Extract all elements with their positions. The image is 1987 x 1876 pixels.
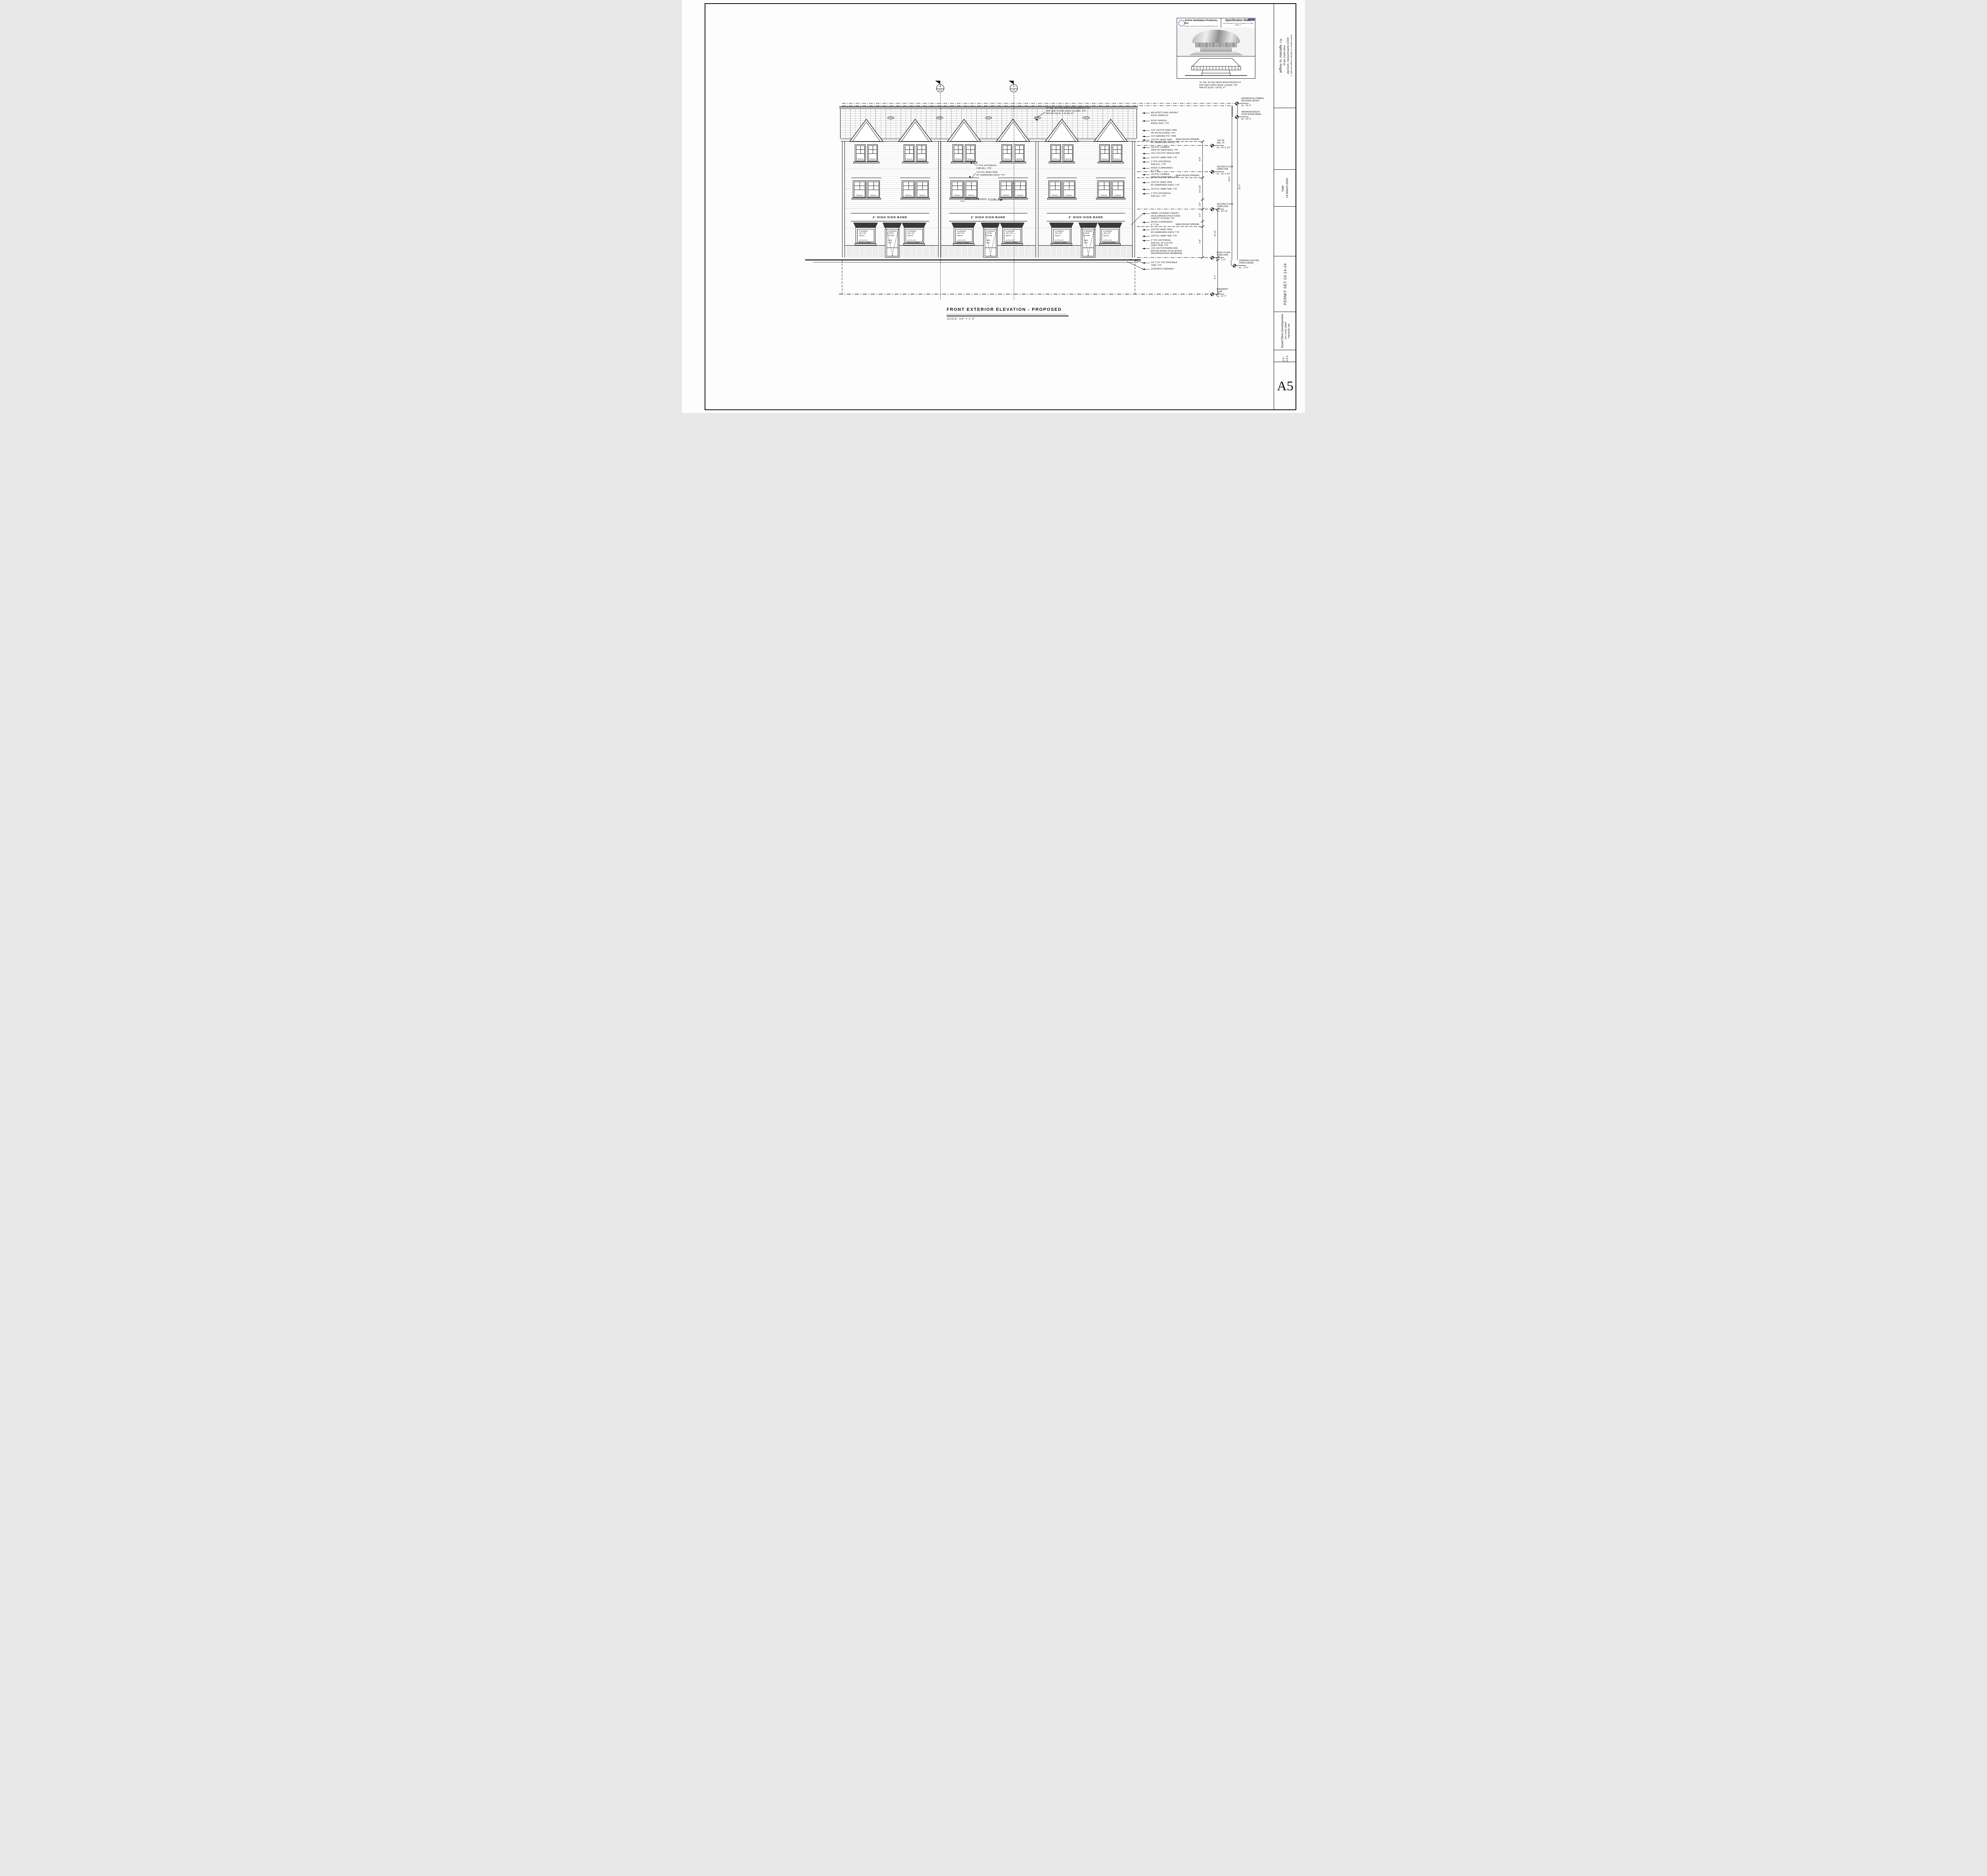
elevation-callout-label: SECOND FLOOR SUBFLOOR [1217, 203, 1234, 208]
section-marker-flag [935, 81, 940, 84]
second-floor-window: TW2642 [1062, 180, 1075, 198]
annotation-note: 2" PVC HISTORICAL SUB-SILL W/ 1X4 PVC SK… [1151, 239, 1173, 247]
second-floor-window: TW2642 [1097, 180, 1110, 198]
dormer-window: TW2642 [904, 144, 914, 162]
head-rough-opening-label: HEAD ROUGH OPENING [1171, 174, 1199, 177]
sign-band: 2' HIGH SIGN BAND [1047, 213, 1125, 221]
elevation-marker-icon [1210, 144, 1214, 147]
dormer-window: TW2642 [965, 144, 976, 162]
annotation-note: WOOD CLAPBOARDS 4" T.T.W. [1151, 167, 1173, 172]
storefront-sill [1001, 243, 1023, 245]
dimension-label: 34'-6" [1228, 176, 1231, 181]
annotation-note: 1X3/ 1X8 PVD BOARD AND BATTEN SIDING ON … [1151, 247, 1182, 255]
second-floor-window: TW2642 [902, 180, 915, 198]
storefront-window: KAWNEER 451T OR EQUAL 4'-0"X 3'-8" ROUGH… [856, 227, 875, 243]
second-floor-window: TW2642 [999, 180, 1013, 198]
elevation-value: EL. -0'-6" [1239, 267, 1249, 269]
roof-pop-vent [887, 116, 894, 119]
window-tag: TW2642 [967, 158, 974, 161]
annotation-note: WOOD CLAPBOARDS 4" T.T.W. [1151, 221, 1173, 226]
elevation-value: EL. 10'-10" [1217, 210, 1228, 213]
head-rough-opening-label: HEAD ROUGH OPENING [1171, 223, 1199, 226]
second-floor-head-trim [1047, 178, 1077, 180]
window-tag: TW2642 [1065, 158, 1071, 161]
dormer-window: TW2642 [953, 144, 963, 162]
dormer-head-trim [1097, 141, 1125, 144]
second-floor-window: TW2642 [853, 180, 866, 198]
dormer-window: TW2642 [1099, 144, 1110, 162]
section-marker: 1A9 [1010, 84, 1018, 92]
roof-pop-vent [936, 116, 943, 119]
second-floor-window: TW2642 [867, 180, 880, 198]
storefront-window: KAWNEER 451T OR EQUAL 4'-0"X 3'-8" ROUGH… [904, 227, 924, 243]
elevation-value: EL. 0'-0" [1217, 259, 1226, 261]
annotation-note: FABRIC COVERED CANOPY ON ALUMINUM STRUCT… [1151, 212, 1181, 220]
second-floor-window: TW2642 [916, 180, 929, 198]
annotation-note: ROOF SHINGLE RIDGE VENT, TYP. [1151, 120, 1169, 125]
dormer-window: TW2642 [1001, 144, 1012, 162]
dormer-head-trim [950, 141, 978, 144]
annotation-note: 1X3/ 1X8 PVC RAKE TRIM ON 2X8 BLOCKING, … [1151, 129, 1177, 134]
dormer-sub-sill [853, 162, 879, 163]
storefront-window: KAWNEER 451T OR EQUAL 4'-0"X 3'-8" ROUGH… [1100, 227, 1120, 243]
drawing-scale: SCALE: 1/4" = 1'-0" [947, 318, 975, 320]
dormer-head-trim [1048, 141, 1076, 144]
fabric-canopy [1000, 223, 1024, 227]
dormer-sub-sill [1000, 162, 1026, 163]
sign-band-text: 2' HIGH SIGN BAND [971, 215, 1005, 219]
annotation-note: 2" PVC HISTORICAL SUB-SILL, TYP. [1151, 161, 1171, 166]
drawing-sheet: Active Ventilation Products, Inc. Websit… [682, 0, 1305, 413]
pop-vent-line-drawing [1177, 56, 1255, 78]
dimension-label: 10'-10" [1214, 230, 1216, 236]
storefront-sill [903, 243, 925, 245]
window-tag: TW2642 [1016, 158, 1023, 161]
fabric-canopy [951, 223, 976, 227]
second-floor-head-trim [998, 178, 1028, 180]
vent-specification-sheet: Active Ventilation Products, Inc. Websit… [1177, 18, 1255, 79]
drawing-title: FRONT EXTERIOR ELEVATION - PROPOSED [947, 307, 1062, 312]
dimension-label: 8'-8" [1199, 157, 1201, 161]
fabric-canopy [981, 223, 1000, 227]
dormer-window: TW2642 [867, 144, 878, 162]
roof-pop-vent [985, 116, 992, 119]
elevation-callout-label: AVERAGE EXISTING FINISH GRADE [1239, 260, 1259, 265]
window-tag: TW2642 [857, 158, 864, 161]
elevation-marker-icon [1210, 293, 1214, 296]
second-floor-sub-sill [1047, 198, 1077, 200]
dormer-window: TW2642 [1112, 144, 1122, 162]
spec-date-badge: 4/19/2022 [1248, 19, 1255, 21]
section-cut-line [940, 93, 941, 300]
second-floor-sub-sill [901, 198, 930, 200]
annotation-note: 1X6 PVC HEAD TRIM W/ CHAMFERED ENDS, TYP… [1151, 181, 1179, 186]
elevation-marker-icon [1210, 207, 1214, 211]
dormer-head-trim [901, 141, 929, 144]
elevation-value: EL. 35'-0" [1241, 105, 1251, 107]
window-tag: TW2642 [1065, 194, 1072, 197]
spec-contact: Website: roofvents.com Email: sales@roof… [1185, 25, 1220, 27]
window-tag: TW2642 [856, 194, 863, 197]
title-underline [947, 314, 1067, 314]
storefront-sill [953, 243, 974, 245]
fabric-canopy [902, 223, 926, 227]
annotation-note: ARCHITECTURAL ASPHALT ROOF SHINGLES [1151, 112, 1179, 117]
window-tag: TW2642 [1100, 194, 1107, 197]
section-cut-line [1014, 93, 1014, 300]
dormer-window: TW2642 [1063, 144, 1073, 162]
storefront-window-label: KAWNEER 451T OR EQUAL 4'-0"X 3'-8" ROUGH… [955, 229, 972, 242]
elevation-value: EL. 24'-3 1/2" [1217, 147, 1231, 149]
annotation-note: 1X6 PVC HEAD TRIM W/ CHAMFERED ENDS, TYP… [1151, 229, 1179, 234]
roof-vent-note: 16" DIA. 'ACTIVE VENTILATION PRODUCTS' P… [1046, 107, 1090, 115]
window-tag: TW2642 [918, 158, 925, 161]
annotation-note: 1X4 PVC JAMB TRIM, TYP. [1151, 235, 1177, 238]
elevation-value: EL. 34'-6" [1241, 118, 1251, 120]
fabric-canopy [1098, 223, 1122, 227]
second-floor-sub-sill [998, 198, 1028, 200]
window-tag: TW2642 [968, 194, 974, 197]
elevation-callout-label: BASEMENT SLAB [1217, 288, 1228, 293]
dormer-head-trim [999, 141, 1027, 144]
window-tag: TW2642 [919, 194, 926, 197]
section-marker-sheet: A9 [1010, 89, 1017, 91]
elevation-value: EL. 19'-4 1/2" [1217, 173, 1231, 175]
avp-logo-icon [1178, 20, 1185, 27]
pvc-corner-trim [1132, 141, 1135, 258]
dormer-sub-sill [1098, 162, 1124, 163]
annotation-note: 2" PVC HISTORICAL SUB-SILL, TYP. [1151, 192, 1171, 198]
annotation-note: 1X4 PVC JAMB TRIM, TYP. [1151, 188, 1177, 191]
dormer-window: TW2642 [1050, 144, 1061, 162]
storefront-window-label: KAWNEER 451T OR EQUAL 4'-0"X 3'-8" ROUGH… [1053, 229, 1070, 242]
window-tag: TW2642 [955, 158, 961, 161]
storefront-window-label: KAWNEER 451T OR EQUAL 4'-0"X 3'-8" ROUGH… [1004, 229, 1021, 242]
annotation-note: 1X4 SUBRAKE PVC TRIM [1151, 135, 1176, 138]
pvc-corner-trim [842, 141, 845, 258]
second-floor-sub-sill [1096, 198, 1125, 200]
dormer-window: TW2642 [1014, 144, 1024, 162]
storefront-window-label: KAWNEER 451T OR EQUAL 4'-0"X 3'-8" ROUGH… [1102, 229, 1119, 242]
spec-company: Active Ventilation Products, Inc. [1185, 19, 1220, 25]
section-marker-number: 4 [937, 85, 944, 88]
annotation-note: 5/4" X 10" PVC PAINTABLE TRIM, TYP. [1151, 262, 1177, 267]
storefront-sill [1099, 243, 1121, 245]
elevation-value: EL. -8'-7" [1217, 295, 1226, 298]
window-tag: TW2642 [1052, 194, 1058, 197]
sign-band: 2' HIGH SIGN BAND [851, 213, 929, 221]
second-floor-window: TW2642 [951, 180, 964, 198]
second-floor-head-trim [851, 178, 881, 180]
window-tag: TW2642 [905, 194, 912, 197]
dimension-label: 2'-0" [1199, 202, 1201, 206]
sign-band-text: 2' HIGH SIGN BAND [1069, 215, 1103, 219]
window-tag: TW2642 [1114, 194, 1121, 197]
annotation-note: 1X4/ 1X10 PVC FASCIA TRIM [1151, 152, 1179, 155]
annotation-note: CONCRETE SIDEWALK [1151, 268, 1174, 271]
center-annotation: WOOD CLAPBOARDS, 4" T.T.W. [965, 198, 996, 201]
spec-caption: 16" DIA. 'ACTIVE VENTILATION PRODUCTS' P… [1199, 81, 1241, 89]
storefront-window: KAWNEER 451T OR EQUAL 4'-0"X 3'-8" ROUGH… [1002, 227, 1022, 243]
dormer-sub-sill [1049, 162, 1075, 163]
dimension-label: 8'-4 1/2" [1199, 185, 1201, 193]
window-tag: TW2642 [906, 158, 912, 161]
second-floor-head-trim [900, 178, 930, 180]
center-annotation: 1X6 PVC HEAD TRIM W/ CHAMFERED ENDS, TYP… [976, 171, 1005, 176]
elevation-marker-icon [1210, 170, 1214, 174]
center-annotation: 2" PVC HISTORICAL SUB-SILL, TYP. [976, 165, 997, 170]
elevation-callout-label: SECOND FLOOR SUBFLOOR [1217, 166, 1234, 171]
window-tag: TW2642 [1003, 158, 1010, 161]
annotation-note: 1X6 PVC CORNER TRIM ON SHEATHING, TYP. [1151, 146, 1178, 151]
spec-sheet-header: Active Ventilation Products, Inc. Websit… [1177, 18, 1255, 28]
fabric-canopy [853, 223, 878, 227]
elevation-callout-label: MAXIMUM ALLOWABLE BUILDING HEIGHT [1241, 97, 1264, 103]
storefront-window: KAWNEER 451T OR EQUAL 4'-0"X 3'-8" ROUGH… [1052, 227, 1071, 243]
window-tag: TW2642 [1114, 158, 1120, 161]
second-floor-head-trim [949, 178, 979, 180]
section-marker-sheet: A10 [937, 89, 944, 91]
dormer-window: TW2642 [855, 144, 866, 162]
second-floor-sub-sill [852, 198, 881, 200]
elevation-marker-icon [1235, 102, 1239, 105]
window-tag: TW2642 [1052, 158, 1059, 161]
elevation-marker-icon [1235, 115, 1239, 119]
dimension-label: 3'-0" [1199, 213, 1201, 217]
fabric-canopy [1049, 223, 1074, 227]
roof-pop-vent [1034, 116, 1041, 119]
storefront-window-label: KAWNEER 451T OR EQUAL 4'-0"X 3'-8" ROUGH… [906, 229, 923, 242]
second-floor-window: TW2642 [964, 180, 978, 198]
section-marker: 4A10 [936, 84, 944, 92]
dormer-head-trim [852, 141, 880, 144]
window-tag: TW2642 [1017, 194, 1023, 197]
window-tag: TW2642 [870, 194, 877, 197]
dimension-label: 35'-0" [1239, 184, 1241, 189]
second-floor-head-trim [1096, 178, 1126, 180]
dormer-sub-sill [902, 162, 928, 163]
storefront-sill [1051, 243, 1072, 245]
window-tag: TW2642 [869, 158, 876, 161]
elevation-callout-label: TOP OF DBL. PL. [1217, 140, 1225, 145]
head-rough-opening-label: HEAD ROUGH OPENING [1171, 138, 1199, 141]
dimension-label: 6'-8" [1199, 239, 1201, 243]
section-marker-flag [1009, 81, 1014, 84]
fabric-canopy [883, 223, 902, 227]
elevation-marker-icon [1210, 256, 1214, 260]
sign-band: 2' HIGH SIGN BAND [949, 213, 1027, 221]
dormer-sub-sill [951, 162, 977, 163]
storefront-window-label: KAWNEER 451T OR EQUAL 4'-0"X 3'-8" ROUGH… [857, 229, 874, 242]
window-tag: TW2642 [1101, 158, 1108, 161]
spec-fields: Pop Vent Model: PV-16-C2 Diameter: 16" C… [1221, 23, 1255, 26]
window-tag: TW2642 [1003, 194, 1009, 197]
dormer-window: TW2642 [916, 144, 927, 162]
title-underline-heavy [947, 316, 1069, 316]
sign-band-text: 2' HIGH SIGN BAND [873, 215, 907, 219]
storefront-window: KAWNEER 451T OR EQUAL 4'-0"X 3'-8" ROUGH… [954, 227, 974, 243]
fabric-canopy [1079, 223, 1098, 227]
elevation-marker-icon [1233, 264, 1236, 267]
pop-vent-photo [1177, 27, 1255, 56]
elevation-callout-label: FIRST FLOOR SUBFLOOR [1217, 252, 1230, 257]
window-tag: TW2642 [954, 194, 961, 197]
section-marker-number: 1 [1010, 85, 1017, 88]
annotation-note: 1X4 PVC JAMB TRIM, TYP. [1151, 157, 1177, 159]
second-floor-window: TW2642 [1111, 180, 1124, 198]
second-floor-window: TW2642 [1013, 180, 1026, 198]
storefront-sill [855, 243, 876, 245]
roof-pop-vent [1083, 116, 1090, 119]
pvc-corner-trim [1036, 141, 1038, 258]
dimension-label: 8'-7" [1214, 275, 1216, 279]
second-floor-window: TW2642 [1048, 180, 1061, 198]
elevation-callout-label: MAXIMUM HEIGHT ROOF RIDGE BEAM [1241, 111, 1261, 116]
